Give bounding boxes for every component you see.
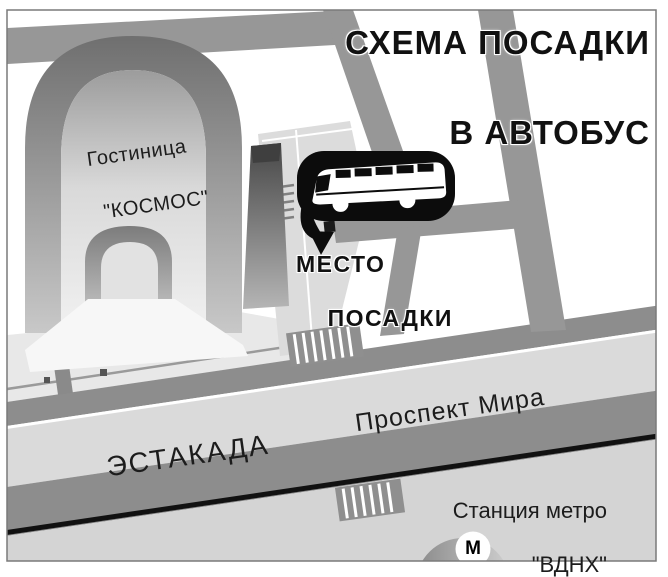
hotel-column — [243, 143, 289, 309]
title-line-2: В АВТОБУС — [449, 114, 650, 151]
metro-m-letter: М — [460, 536, 486, 562]
page-title: СХЕМА ПОСАДКИ В АВТОБУС — [345, 20, 650, 155]
bus-stop-marker — [324, 221, 336, 233]
title-line-1: СХЕМА ПОСАДКИ — [345, 24, 650, 61]
map-canvas: СХЕМА ПОСАДКИ В АВТОБУС Гостиница "КОСМО… — [0, 0, 668, 577]
boarding-place-label: МЕСТО ПОСАДКИ — [296, 251, 453, 332]
